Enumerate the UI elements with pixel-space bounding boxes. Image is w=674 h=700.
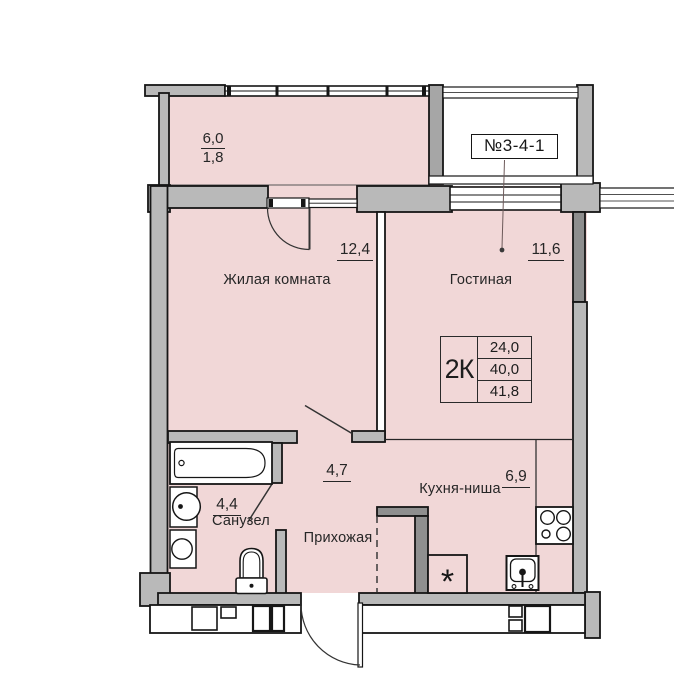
balcony-window-small <box>309 199 357 208</box>
unit-number-badge: №3-4-1 <box>471 134 558 159</box>
neighbor-window <box>600 188 674 208</box>
kitchen-area: 6,9 <box>501 468 531 488</box>
bottom-wall-band <box>150 605 585 633</box>
unit-type-cell: 2К <box>441 337 478 402</box>
hallway-area: 4,7 <box>322 462 352 482</box>
bathtub-icon <box>170 442 272 484</box>
balcony-glazing <box>225 86 429 96</box>
balcony-door-threshold <box>267 198 309 208</box>
floor-plan: №3-4-1 6,0 1,8 Жилая комната 12,4 Гостин… <box>0 0 674 700</box>
washbasin-icon <box>170 487 200 527</box>
bathroom-area: 4,4 <box>212 496 242 516</box>
summary-table: 2К 24,0 40,0 41,8 <box>440 336 532 403</box>
apartment-area-value: 40,0 <box>478 359 531 381</box>
lounge-area: 11,6 <box>527 241 565 261</box>
lounge-window <box>450 187 561 210</box>
stove-icon <box>536 507 573 544</box>
toilet-icon <box>236 549 267 594</box>
living-area-value: 24,0 <box>478 337 531 359</box>
floor-plan-drawing <box>0 0 674 700</box>
neighbor-balcony-glazing <box>443 87 578 98</box>
kitchen-sink-icon <box>507 556 539 590</box>
kitchen-label: Кухня-ниша <box>416 481 504 497</box>
living-room-area: 12,4 <box>336 241 374 261</box>
hallway-label: Прихожая <box>299 530 377 546</box>
balcony-area-upper: 6,0 <box>201 130 226 149</box>
washing-machine-icon <box>170 530 196 568</box>
balcony-slab-edge <box>429 176 593 184</box>
balcony-area-label: 6,0 1,8 <box>196 130 230 166</box>
total-area-value: 41,8 <box>478 381 531 402</box>
fridge-symbol: * <box>431 556 464 593</box>
lounge-label: Гостиная <box>436 272 526 288</box>
living-room-label: Жилая комната <box>207 272 347 288</box>
balcony-area-lower: 1,8 <box>196 149 230 166</box>
